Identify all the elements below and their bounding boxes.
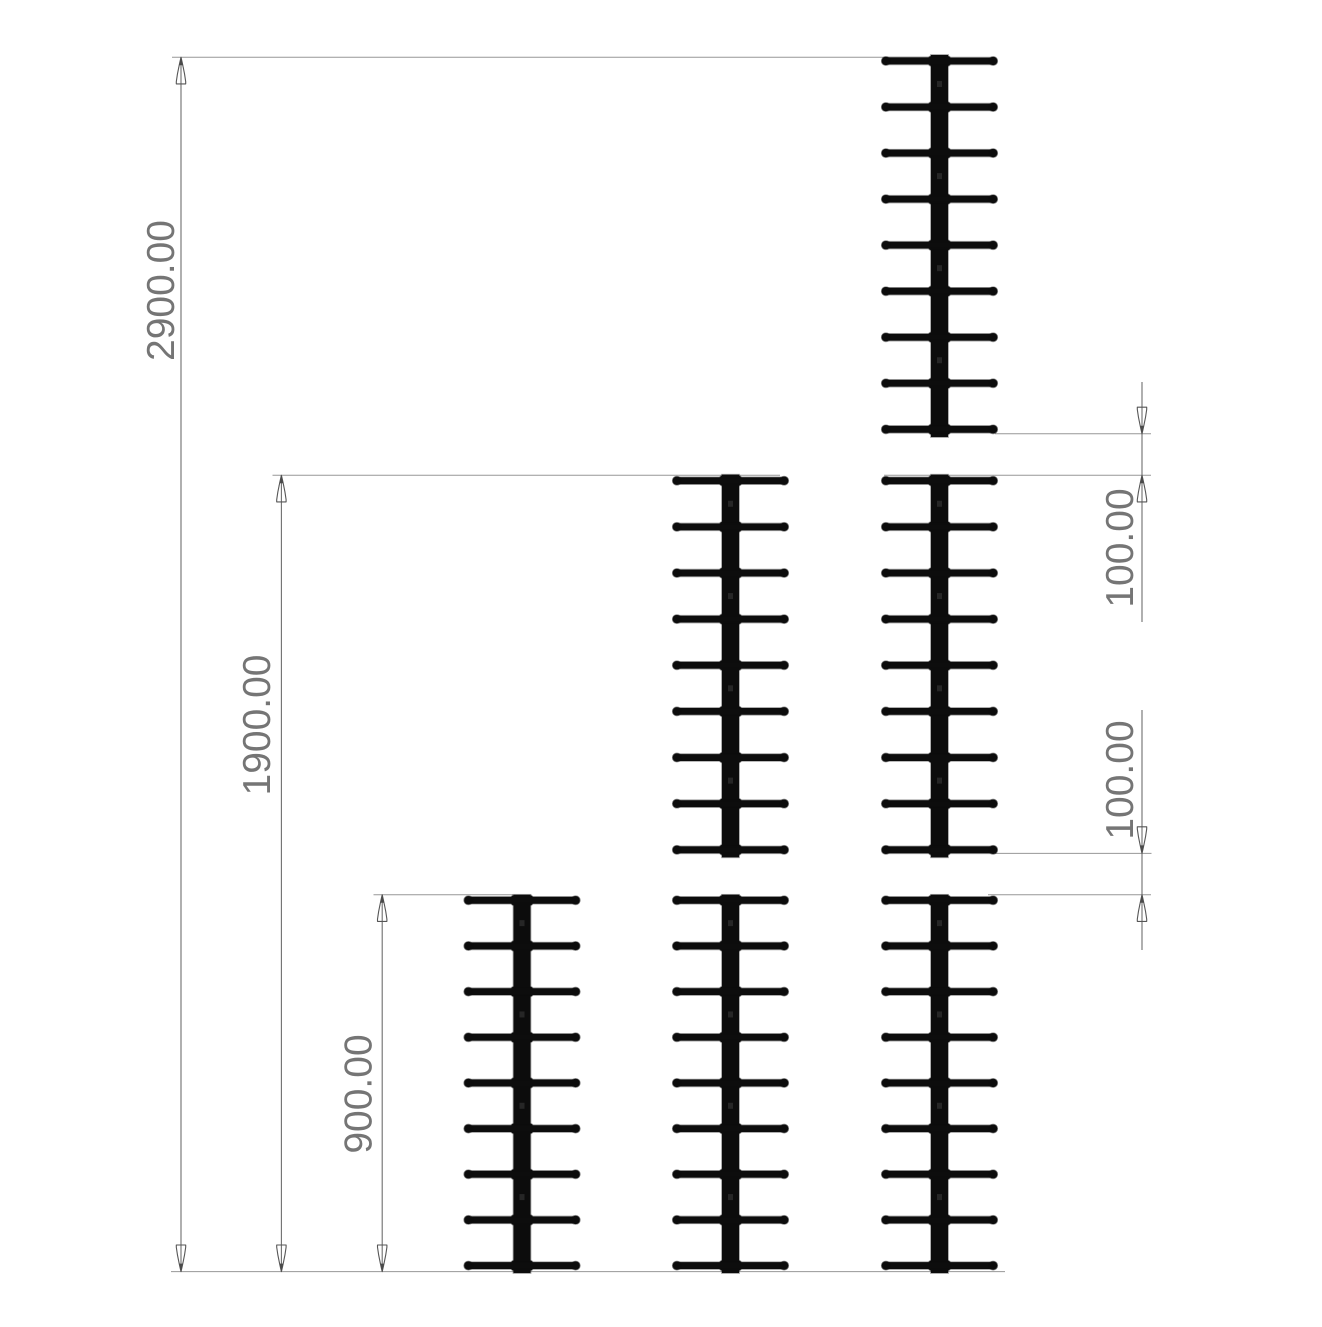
svg-text:100.00: 100.00	[1099, 720, 1142, 839]
svg-text:100.00: 100.00	[1099, 488, 1142, 607]
svg-text:1900.00: 1900.00	[236, 655, 279, 796]
svg-text:2900.00: 2900.00	[140, 220, 183, 361]
svg-text:900.00: 900.00	[338, 1034, 381, 1153]
